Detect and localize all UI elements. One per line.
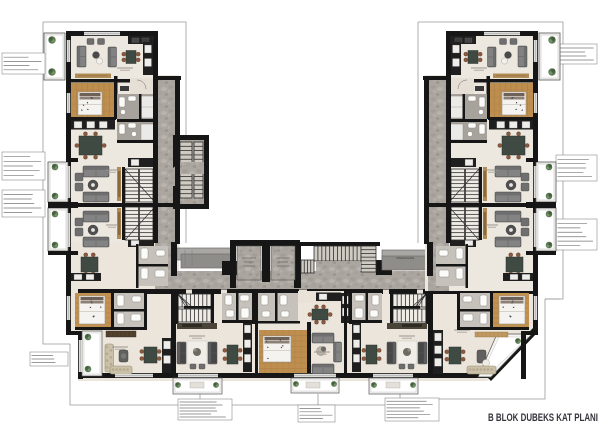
svg-text:B BLOK DUBEKS KAT PLANI: B BLOK DUBEKS KAT PLANI — [488, 412, 598, 424]
svg-text:YANGIN KACIS: YANGIN KACIS — [396, 256, 415, 260]
